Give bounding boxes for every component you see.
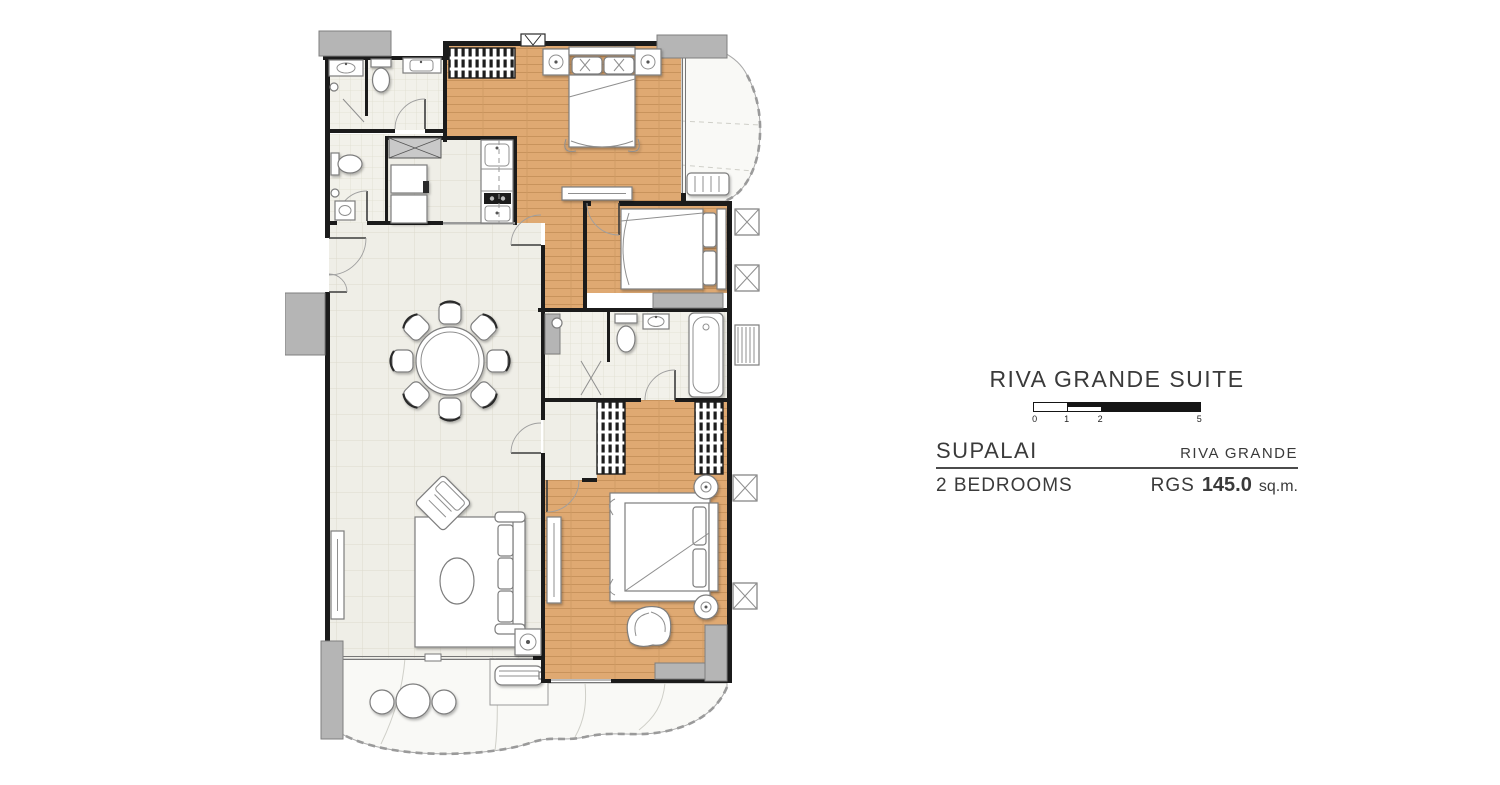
sink-icon <box>403 58 441 73</box>
wardrobe-icon <box>449 48 515 78</box>
dining-chair-icon <box>487 350 510 372</box>
toilet-icon <box>371 59 391 92</box>
scale-tick-2: 2 <box>1098 414 1103 424</box>
bedroom-2 <box>621 209 759 291</box>
tv-cabinet-icon <box>331 531 344 619</box>
floor-plan-drawing <box>285 25 765 765</box>
wardrobe-icon <box>597 402 625 474</box>
column-bottom-left <box>321 641 343 739</box>
laundry-sink-icon <box>335 201 355 220</box>
ac-ledge-box-icon <box>735 209 759 291</box>
nightstand-icon <box>635 49 661 75</box>
unit-title: RIVA GRANDE SUITE <box>936 366 1298 393</box>
dining-chair-icon <box>439 302 461 325</box>
dining-chair-icon <box>391 350 414 372</box>
scale-tick-5: 5 <box>1197 414 1202 424</box>
column-top-right <box>657 35 727 58</box>
tv-cabinet-icon <box>547 517 561 603</box>
hall-floor <box>543 400 597 480</box>
shaft-kitchen <box>389 138 441 158</box>
ledge-bedroom-2 <box>653 293 723 308</box>
round-table-icon <box>694 595 718 619</box>
armchair-icon <box>627 607 671 647</box>
bed-icon <box>609 493 718 601</box>
area-value: 145.0 <box>1202 474 1252 497</box>
scale-bar: 0 1 2 5 <box>1033 402 1201 426</box>
vanity-icon <box>329 60 363 76</box>
balcony-bench-icon <box>490 659 548 705</box>
title-panel: RIVA GRANDE SUITE 0 1 2 5 SUPALAI RIVA G… <box>936 366 1298 497</box>
sofa-icon <box>495 512 525 634</box>
ac-ledge-box-icon <box>733 475 757 609</box>
scale-tick-0: 0 <box>1032 414 1037 424</box>
scale-bar-graphic <box>1033 402 1201 412</box>
bathtub-icon <box>689 313 723 397</box>
bed-icon <box>565 47 640 152</box>
scale-tick-1: 1 <box>1064 414 1069 424</box>
shower-head-icon <box>331 189 339 197</box>
project-name: RIVA GRANDE <box>1180 445 1298 462</box>
round-table-icon <box>694 475 718 499</box>
shower-head-icon <box>330 83 338 91</box>
area-unit: sq.m. <box>1259 478 1298 496</box>
planter-box-icon <box>735 325 759 365</box>
dining-chair-icon <box>439 398 461 421</box>
area-code: RGS <box>1151 475 1195 497</box>
unit-type: 2 BEDROOMS <box>936 475 1073 497</box>
shaft-master <box>705 625 727 681</box>
wardrobe-icon <box>695 402 723 474</box>
floor-plan-svg <box>285 25 765 765</box>
balcony-top-right <box>681 43 760 201</box>
unit-area: RGS 145.0 sq.m. <box>1151 474 1298 497</box>
nightstand-icon <box>543 49 569 75</box>
sink-icon <box>643 314 669 329</box>
dining-table-icon <box>416 327 484 395</box>
counter <box>481 140 513 223</box>
ac-unit-icon <box>687 173 729 195</box>
divider-line <box>936 467 1298 469</box>
tv-cabinet-icon <box>562 187 632 200</box>
vent-icon <box>521 34 545 46</box>
toilet-icon <box>331 153 362 175</box>
column-top-left <box>319 31 391 56</box>
dining-area <box>391 302 510 421</box>
brand-name: SUPALAI <box>936 438 1038 464</box>
shower-head-icon <box>552 318 562 328</box>
side-table-icon <box>515 629 541 655</box>
toilet-icon <box>615 314 637 352</box>
column-left <box>285 293 325 355</box>
coffee-table-icon <box>440 558 474 604</box>
